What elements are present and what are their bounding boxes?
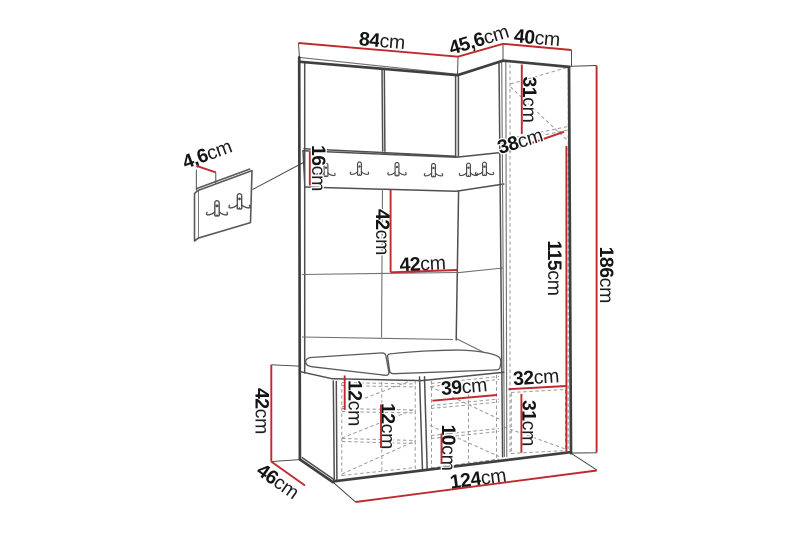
svg-text:42cm: 42cm (371, 209, 393, 255)
svg-text:42cm: 42cm (250, 388, 272, 434)
svg-text:10cm: 10cm (437, 424, 459, 470)
svg-text:12cm: 12cm (343, 380, 365, 426)
svg-text:12cm: 12cm (376, 403, 398, 449)
svg-text:115cm: 115cm (543, 240, 565, 295)
svg-text:42cm: 42cm (399, 252, 446, 276)
svg-text:186cm: 186cm (595, 247, 617, 303)
